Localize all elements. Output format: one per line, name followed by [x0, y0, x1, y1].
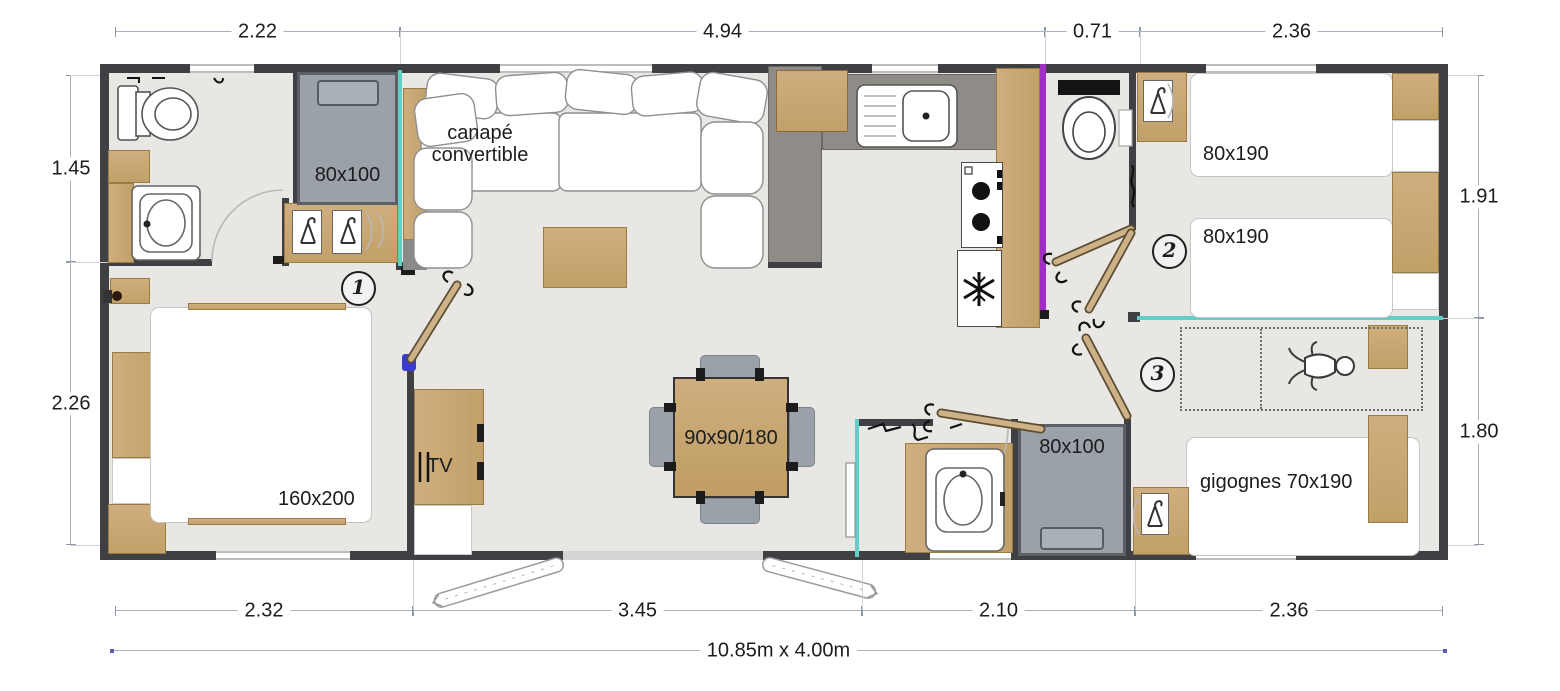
- extension-line: [1448, 75, 1478, 76]
- hanger-icon: [1148, 501, 1162, 526]
- dim-bottom-3: 2.10: [862, 610, 1135, 611]
- door-leaf-icon: [1073, 323, 1127, 416]
- dim-overall: 10.85m x 4.00m: [110, 650, 1447, 651]
- extension-line: [1045, 31, 1046, 64]
- hanger-icon: [341, 218, 355, 243]
- hanger-icon: [301, 218, 315, 243]
- extension-line: [1140, 31, 1141, 64]
- master-bed-label: 160x200: [278, 488, 355, 510]
- dim-bottom-4: 2.36: [1135, 610, 1443, 611]
- dim-top-2: 4.94: [400, 31, 1045, 32]
- shower-door-panel: [846, 463, 855, 537]
- bunk-bed-label: 80x100: [297, 164, 398, 186]
- twin-bed-label: 80x190: [1203, 143, 1269, 165]
- baby-icon: [1289, 342, 1354, 390]
- hanger-icon: [1151, 88, 1165, 113]
- extension-line: [1448, 545, 1478, 546]
- dim-left-2: 2.26: [70, 262, 71, 545]
- room-number-1: 1: [341, 271, 376, 306]
- tv-label: TV: [427, 455, 453, 477]
- extension-line: [400, 31, 401, 64]
- snowflake-icon: [964, 272, 994, 306]
- dim-top-4: 2.36: [1140, 31, 1443, 32]
- wall-lamp-icon: [103, 290, 122, 303]
- faucet-marks: [868, 424, 962, 440]
- bunk-bed-label: 80x100: [1020, 436, 1124, 458]
- dim-right-1: 1.91: [1478, 75, 1479, 318]
- room-number-2: 2: [1152, 234, 1187, 269]
- kitchen-sink-icon: [857, 85, 957, 147]
- floorplan-canvas: canapé convertible 80x100 160x200 TV 90x…: [0, 0, 1560, 691]
- dim-top-1: 2.22: [115, 31, 400, 32]
- dim-bottom-2: 3.45: [413, 610, 862, 611]
- extension-line: [413, 560, 414, 610]
- gigognes-bed-label: gigognes 70x190: [1200, 471, 1352, 493]
- entrance-door-leaf: [431, 556, 565, 609]
- stove-burners-icon: [965, 167, 1002, 244]
- room-number-3: 3: [1140, 357, 1175, 392]
- sink-icon: [926, 449, 1005, 551]
- extension-line: [1135, 560, 1136, 610]
- dim-left-1: 1.45: [70, 75, 71, 262]
- sink-icon: [132, 186, 200, 260]
- extension-line: [1443, 318, 1478, 319]
- twin-bed-label: 80x190: [1203, 226, 1269, 248]
- fixtures-overlay: [0, 0, 1560, 691]
- dining-table-label: 90x90/180: [673, 427, 789, 449]
- dim-bottom-1: 2.32: [115, 610, 413, 611]
- toilet-icon: [1058, 80, 1132, 159]
- extension-line: [70, 75, 100, 76]
- door-leaf-icon: [924, 404, 1041, 431]
- dim-right-2: 1.80: [1478, 318, 1479, 545]
- towel-hooks: [127, 78, 223, 83]
- sofa-sketch: [413, 68, 769, 268]
- sofa-label: canapé convertible: [413, 122, 547, 166]
- door-seal-mark: [1131, 165, 1134, 207]
- dim-top-3: 0.71: [1045, 31, 1140, 32]
- extension-line: [862, 560, 863, 610]
- door-leaf-icon: [411, 272, 472, 359]
- extension-line: [70, 262, 108, 263]
- extension-line: [70, 545, 100, 546]
- toilet-icon: [118, 86, 198, 140]
